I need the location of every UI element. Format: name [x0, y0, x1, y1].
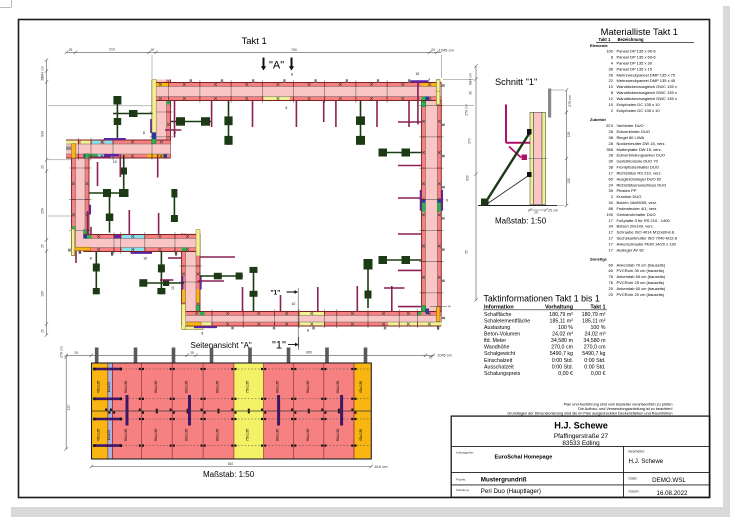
svg-text:Elemente: Elemente [590, 43, 609, 48]
svg-text:9: 9 [174, 131, 176, 135]
svg-text:Wanddickenausgleich DWC 135 x: Wanddickenausgleich DWC 135 x [617, 84, 677, 89]
svg-text:90x135: 90x135 [336, 381, 340, 393]
svg-text:0:00 Std.: 0:00 Std. [584, 364, 605, 370]
svg-text:Plan und Ausführung sind vom B: Plan und Ausführung sind vom Bauleiter v… [564, 403, 673, 407]
svg-text:12: 12 [609, 96, 614, 101]
svg-text:90x135: 90x135 [154, 381, 158, 393]
svg-text:270,0 cm: 270,0 cm [551, 345, 573, 351]
svg-text:Paneel DP 135 x 90-6: Paneel DP 135 x 90-6 [617, 49, 657, 54]
svg-text:10x135: 10x135 [107, 382, 111, 393]
svg-text:Ausschalzeit: Ausschalzeit [484, 364, 514, 370]
svg-text:9: 9 [447, 306, 451, 308]
svg-text:Fußplatte-3 für RS 210 - 1400: Fußplatte-3 für RS 210 - 1400 [617, 218, 671, 223]
svg-text:24,02 m³: 24,02 m³ [552, 332, 573, 338]
svg-text:Sechskantmutter ISO 7040 M12-8: Sechskantmutter ISO 7040 M12-8 [617, 236, 678, 241]
svg-text:34: 34 [609, 200, 614, 205]
svg-text:8: 8 [90, 257, 92, 261]
svg-text:20: 20 [609, 292, 614, 297]
svg-text:H.J. Schewe: H.J. Schewe [554, 421, 608, 431]
svg-text:Kranöse DUO: Kranöse DUO [617, 194, 642, 199]
svg-text:Einschalzeit: Einschalzeit [484, 358, 513, 364]
svg-text:180,79 m²: 180,79 m² [582, 312, 606, 318]
svg-text:Ausgleichsriegel DUO 62: Ausgleichsriegel DUO 62 [617, 176, 662, 181]
svg-text:60: 60 [609, 268, 614, 273]
svg-text:Takt 1: Takt 1 [242, 36, 267, 47]
svg-text:Nockenmutter DW 15, verz.: Nockenmutter DW 15, verz. [617, 141, 666, 146]
svg-text:Die Aufbau- und Verwendungsanl: Die Aufbau- und Verwendungsanleitung ist… [578, 407, 672, 411]
svg-text:Mustergrundriß: Mustergrundriß [481, 477, 527, 484]
svg-text:30: 30 [609, 159, 614, 164]
svg-text:Maßstab: 1:50: Maßstab: 1:50 [495, 217, 547, 226]
svg-text:20: 20 [429, 355, 433, 359]
svg-text:25: 25 [74, 351, 78, 355]
svg-text:874: 874 [606, 123, 613, 128]
svg-text:0:00 Std.: 0:00 Std. [552, 358, 573, 364]
svg-text:0,00 €: 0,00 € [558, 371, 573, 377]
svg-text:PVCRohr 20 cm (bauseits): PVCRohr 20 cm (bauseits) [617, 292, 665, 297]
svg-text:Wanddickenausgleich DWC 135 x: Wanddickenausgleich DWC 135 x [617, 96, 677, 101]
svg-text:10: 10 [113, 160, 117, 164]
svg-text:88: 88 [609, 206, 614, 211]
svg-text:8: 8 [286, 106, 288, 110]
svg-text:Frontpfostenhalter DUO: Frontpfostenhalter DUO [617, 165, 659, 170]
svg-text:8: 8 [307, 329, 309, 333]
svg-text:Seitenansicht "A": Seitenansicht "A" [191, 341, 252, 350]
svg-text:16.08.2022: 16.08.2022 [657, 490, 689, 497]
svg-text:Ankerstab 65 cm (bauseits): Ankerstab 65 cm (bauseits) [617, 274, 666, 279]
svg-text:0:00 Std.: 0:00 Std. [584, 358, 605, 364]
svg-text:90x135: 90x135 [124, 381, 128, 393]
svg-text:760: 760 [291, 48, 297, 52]
svg-text:135: 135 [567, 178, 571, 184]
svg-text:Auslastung: Auslastung [484, 325, 510, 331]
svg-text:10: 10 [609, 102, 614, 107]
svg-text:10: 10 [143, 257, 147, 261]
svg-text:25: 25 [534, 211, 538, 215]
svg-text:Schalgewicht: Schalgewicht [484, 351, 516, 357]
svg-text:190: 190 [606, 212, 613, 217]
svg-text:25: 25 [465, 250, 469, 254]
svg-text:Richtstützenanschluss DUO: Richtstützenanschluss DUO [617, 182, 667, 187]
svg-text:534: 534 [41, 131, 45, 137]
svg-text:25 cm: 25 cm [548, 209, 558, 213]
svg-text:17: 17 [609, 171, 614, 176]
svg-text:25: 25 [69, 48, 73, 52]
svg-text:Grundlagen der Dimensionierung: Grundlagen der Dimensionierung sind die … [507, 412, 672, 416]
svg-text:Paneel DP 135 x 60-6: Paneel DP 135 x 60-6 [617, 55, 657, 60]
svg-text:Peri Duo (Hauptlager): Peri Duo (Hauptlager) [481, 488, 541, 495]
svg-text:45x135: 45x135 [359, 381, 363, 393]
svg-text:10: 10 [609, 84, 614, 89]
svg-text:90x135: 90x135 [154, 429, 158, 441]
svg-text:90x135: 90x135 [216, 429, 220, 441]
svg-text:Materialliste Takt 1: Materialliste Takt 1 [601, 26, 678, 37]
svg-text:17: 17 [609, 242, 614, 247]
svg-text:Mehrzweckpaneel DMP 135 x 45: Mehrzweckpaneel DMP 135 x 45 [617, 78, 676, 83]
svg-text:195: 195 [41, 291, 45, 297]
svg-text:270 cm: 270 cm [60, 346, 64, 358]
svg-text:60: 60 [609, 176, 614, 181]
svg-text:Schalfläche: Schalfläche [484, 312, 511, 318]
svg-text:25: 25 [190, 351, 194, 355]
svg-text:90x135: 90x135 [276, 381, 280, 393]
svg-text:PVCRohr 30 cm (bauseits): PVCRohr 30 cm (bauseits) [617, 268, 665, 273]
svg-text:135: 135 [567, 132, 571, 138]
svg-text:Schraube ISO 4014 M12x80-8.8.: Schraube ISO 4014 M12x80-8.8. [617, 230, 675, 235]
svg-text:EuroSchal Homepage: EuroSchal Homepage [495, 454, 553, 460]
svg-text:"1": "1" [272, 340, 286, 352]
svg-text:8: 8 [143, 131, 145, 135]
svg-text:20: 20 [41, 165, 45, 169]
svg-text:Ankerstab 70 cm (bauseits): Ankerstab 70 cm (bauseits) [617, 262, 666, 267]
svg-text:Wandhöhe: Wandhöhe [484, 345, 509, 351]
svg-text:20: 20 [609, 286, 614, 291]
svg-text:28: 28 [609, 129, 614, 134]
svg-text:Bolzen 16x65/95, verz.: Bolzen 16x65/95, verz. [617, 200, 658, 205]
svg-text:24,02 m³: 24,02 m³ [585, 332, 606, 338]
svg-text:Datum:: Datum: [629, 489, 640, 493]
svg-text:100 %: 100 % [590, 325, 605, 331]
svg-text:17: 17 [609, 230, 614, 235]
svg-text:34: 34 [609, 224, 614, 229]
svg-text:90x135: 90x135 [336, 429, 340, 441]
svg-text:185,11 m²: 185,11 m² [550, 318, 574, 324]
svg-text:28: 28 [609, 153, 614, 158]
svg-text:1045 cm: 1045 cm [439, 48, 455, 53]
svg-text:Eckpfosten DC 135 x 10: Eckpfosten DC 135 x 10 [617, 102, 661, 107]
svg-text:Eckverbindungsanker DUO: Eckverbindungsanker DUO [617, 153, 665, 158]
svg-text:45x135: 45x135 [97, 429, 101, 441]
svg-text:H.J. Schewe: H.J. Schewe [629, 458, 664, 465]
svg-text:76: 76 [609, 280, 614, 285]
svg-text:810 cm: 810 cm [375, 464, 389, 469]
svg-text:100: 100 [606, 49, 613, 54]
svg-text:Bearbeiter:: Bearbeiter: [629, 450, 646, 454]
svg-text:255: 255 [41, 208, 45, 214]
svg-text:Takt 1: Takt 1 [599, 37, 611, 42]
svg-text:45x135: 45x135 [359, 429, 363, 441]
svg-text:Pfosten PP: Pfosten PP [617, 188, 637, 193]
svg-text:270 cm: 270 cm [568, 95, 572, 107]
svg-text:10: 10 [416, 72, 420, 76]
svg-text:Schalungspreis: Schalungspreis [484, 371, 521, 377]
svg-text:75x135: 75x135 [246, 381, 250, 393]
svg-text:25: 25 [41, 329, 45, 333]
svg-text:Ankerschraube PERI 14/20 x 130: Ankerschraube PERI 14/20 x 130 [617, 242, 677, 247]
svg-text:Gerüstrohrhalter DUO: Gerüstrohrhalter DUO [617, 212, 656, 217]
svg-text:Gerüstkonsole DUO 70: Gerüstkonsole DUO 70 [617, 159, 659, 164]
svg-text:30: 30 [41, 77, 45, 81]
svg-text:Ankerstab 60 cm (bauseits): Ankerstab 60 cm (bauseits) [617, 286, 666, 291]
svg-text:90x135: 90x135 [306, 381, 310, 393]
svg-text:25: 25 [41, 244, 45, 248]
svg-text:90x135: 90x135 [276, 429, 280, 441]
svg-text:24: 24 [609, 182, 614, 187]
svg-text:100 %: 100 % [558, 325, 573, 331]
svg-text:1045 cm: 1045 cm [438, 353, 452, 357]
svg-text:PVCRohr 25 cm (bauseits): PVCRohr 25 cm (bauseits) [617, 280, 665, 285]
svg-text:270: 270 [67, 405, 71, 411]
svg-text:Schalelementfläche: Schalelementfläche [484, 318, 530, 324]
svg-text:Maßstab: 1:50: Maßstab: 1:50 [203, 470, 255, 479]
svg-text:83533 Edling: 83533 Edling [562, 440, 600, 447]
svg-text:5490,7 kg: 5490,7 kg [582, 351, 605, 357]
svg-text:Takt 1: Takt 1 [590, 304, 605, 310]
svg-text:17: 17 [609, 247, 614, 252]
svg-text:Datei:: Datei: [629, 476, 638, 480]
svg-text:38: 38 [609, 165, 614, 170]
svg-text:38: 38 [609, 135, 614, 140]
svg-text:180,79 m²: 180,79 m² [549, 312, 573, 318]
svg-text:Schnitt "1": Schnitt "1" [495, 77, 537, 87]
svg-text:17: 17 [609, 218, 614, 223]
svg-text:Wanddickenausgleich DWC 135 x: Wanddickenausgleich DWC 135 x [617, 90, 677, 95]
svg-text:Taktinformationen Takt 1 bis: Taktinformationen Takt 1 bis 1 [484, 294, 600, 304]
svg-text:684 cm: 684 cm [41, 66, 45, 78]
svg-text:36: 36 [609, 66, 614, 71]
svg-text:Mehrzweckpaneel DMP 135 x 75: Mehrzweckpaneel DMP 135 x 75 [617, 72, 676, 77]
svg-text:Pfaffingerstraße 27: Pfaffingerstraße 27 [554, 433, 609, 440]
svg-text:185,11 m²: 185,11 m² [582, 318, 606, 324]
svg-text:90x135: 90x135 [185, 381, 189, 393]
svg-text:"A": "A" [269, 60, 284, 72]
svg-text:Bolzen 20x140, verz.: Bolzen 20x140, verz. [617, 224, 654, 229]
svg-text:810: 810 [228, 462, 234, 466]
svg-text:75x135: 75x135 [246, 429, 250, 441]
svg-text:30: 30 [469, 91, 473, 95]
svg-text:DEMO.WSL: DEMO.WSL [652, 477, 686, 484]
svg-text:39: 39 [609, 188, 614, 193]
svg-text:20: 20 [151, 48, 155, 52]
svg-text:684 cm: 684 cm [469, 73, 473, 85]
svg-text:9: 9 [446, 199, 448, 203]
svg-text:76: 76 [609, 274, 614, 279]
svg-text:28: 28 [609, 141, 614, 146]
svg-text:5490,7 kg: 5490,7 kg [550, 351, 573, 357]
svg-text:Verbinder DUO: Verbinder DUO [617, 123, 644, 128]
svg-text:"1": "1" [271, 289, 281, 296]
svg-text:Riegel 80 LIWA: Riegel 80 LIWA [617, 135, 645, 140]
svg-text:Auftraggeber:: Auftraggeber: [456, 450, 474, 454]
svg-text:0,00 €: 0,00 € [591, 371, 606, 377]
svg-text:Sonstige: Sonstige [590, 256, 608, 261]
svg-text:Federstecker 4/1, verz.: Federstecker 4/1, verz. [617, 206, 658, 211]
svg-text:90x135: 90x135 [185, 429, 189, 441]
svg-text:90x135: 90x135 [216, 381, 220, 393]
svg-text:Mutterplatte DW 15, verz.: Mutterplatte DW 15, verz. [617, 147, 662, 152]
svg-text:210: 210 [109, 48, 115, 52]
svg-text:10: 10 [171, 286, 175, 290]
svg-text:34,580 m: 34,580 m [551, 338, 574, 344]
svg-text:355: 355 [606, 147, 613, 152]
svg-text:Eckverbinder DUO: Eckverbinder DUO [617, 129, 650, 134]
svg-text:20: 20 [431, 48, 435, 52]
svg-text:26: 26 [609, 72, 614, 77]
svg-text:Paneel DP 135 x 15: Paneel DP 135 x 15 [617, 66, 653, 71]
svg-text:Beton-Volumen: Beton-Volumen [484, 332, 520, 338]
svg-text:270,0 cm: 270,0 cm [584, 345, 606, 351]
svg-text:Vorhaltung: Vorhaltung [545, 304, 573, 310]
svg-text:Bezeichnung: Bezeichnung [618, 37, 644, 42]
svg-text:Paneel DP 135 x 30: Paneel DP 135 x 30 [617, 60, 653, 65]
svg-text:10: 10 [292, 302, 296, 306]
svg-text:8: 8 [291, 73, 293, 77]
svg-text:34,580 m: 34,580 m [583, 338, 606, 344]
svg-text:270: 270 [468, 138, 472, 144]
svg-text:Information: Information [484, 304, 514, 310]
svg-text:Richtstütze RS 210, verz.: Richtstütze RS 210, verz. [617, 171, 662, 176]
svg-text:639: 639 [466, 175, 470, 181]
svg-text:45x135: 45x135 [97, 381, 101, 393]
svg-text:22: 22 [609, 78, 614, 83]
svg-text:Zubehör: Zubehör [590, 117, 606, 122]
svg-text:Projekt:: Projekt: [456, 477, 466, 481]
svg-text:90x135: 90x135 [124, 429, 128, 441]
svg-text:17: 17 [609, 236, 614, 241]
svg-text:8: 8 [202, 332, 204, 336]
svg-text:665: 665 [306, 351, 312, 355]
svg-text:10x135: 10x135 [107, 430, 111, 441]
svg-text:90x135: 90x135 [306, 429, 310, 441]
svg-text:0:00 Std.: 0:00 Std. [552, 364, 573, 370]
svg-text:lfd. Meter: lfd. Meter [484, 338, 506, 344]
svg-text:Ausleger AV 82: Ausleger AV 82 [617, 247, 645, 252]
svg-text:60: 60 [609, 262, 614, 267]
svg-text:Eckpfosten DC 135 x 10: Eckpfosten DC 135 x 10 [617, 108, 661, 113]
svg-text:Schalung:: Schalung: [456, 488, 470, 492]
